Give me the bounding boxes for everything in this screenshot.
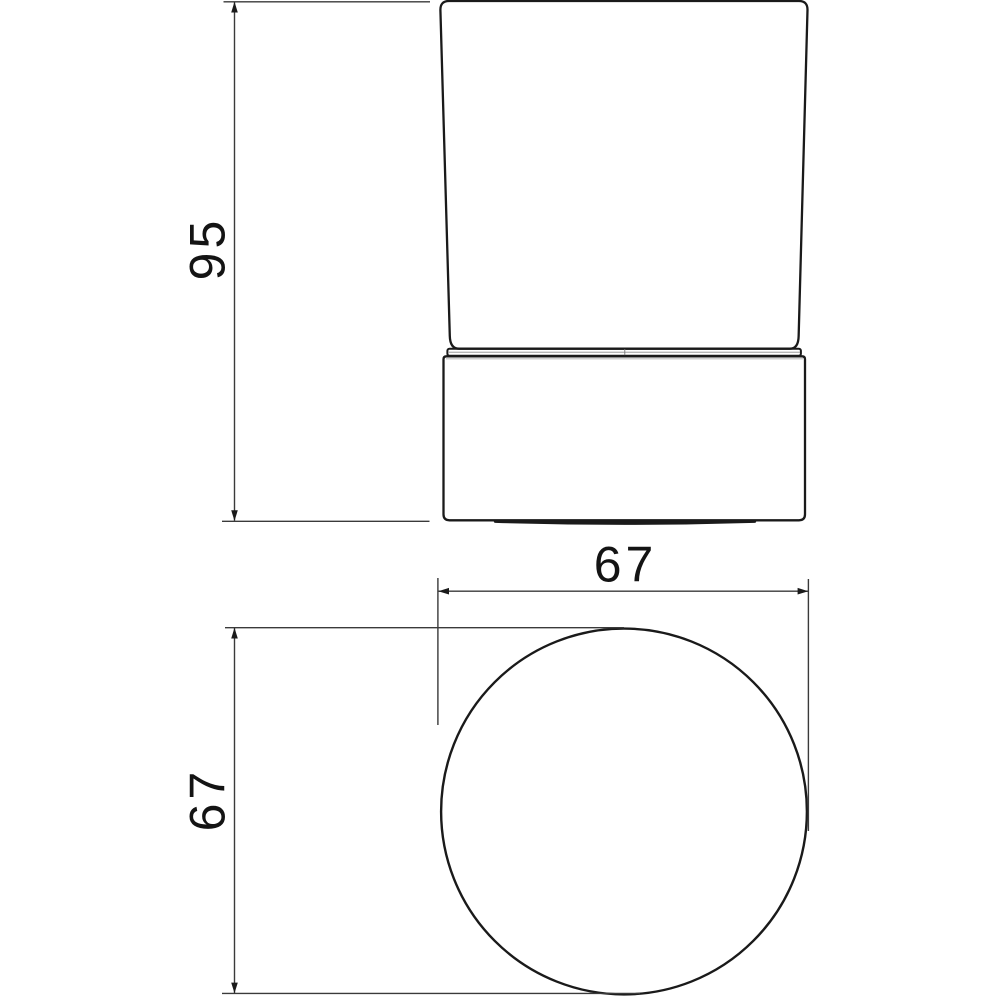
svg-text:95: 95	[180, 217, 236, 281]
svg-text:67: 67	[594, 537, 658, 593]
svg-text:67: 67	[180, 768, 236, 832]
